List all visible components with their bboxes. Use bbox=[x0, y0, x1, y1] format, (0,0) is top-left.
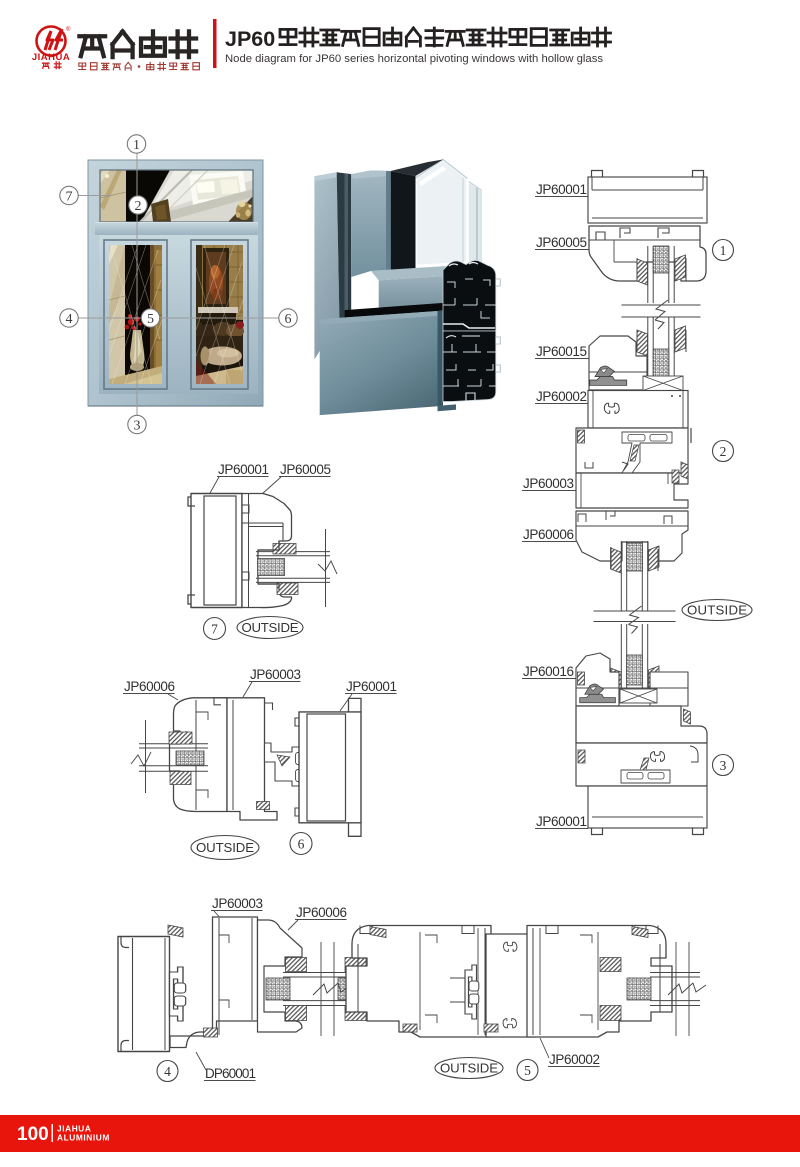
svg-text:3: 3 bbox=[720, 758, 727, 773]
svg-text:7: 7 bbox=[211, 621, 218, 636]
svg-text:JP60005: JP60005 bbox=[280, 462, 331, 477]
svg-text:JP60001: JP60001 bbox=[536, 182, 587, 197]
svg-text:JP60002: JP60002 bbox=[549, 1052, 600, 1067]
svg-text:OUTSIDE: OUTSIDE bbox=[196, 840, 254, 855]
svg-text:OUTSIDE: OUTSIDE bbox=[687, 603, 747, 618]
svg-text:JP60001: JP60001 bbox=[346, 679, 397, 694]
svg-text:ALUMINIUM: ALUMINIUM bbox=[57, 1133, 110, 1143]
svg-text:JP60001: JP60001 bbox=[536, 814, 587, 829]
svg-text:4: 4 bbox=[66, 312, 73, 327]
svg-text:JP60: JP60 bbox=[225, 27, 275, 51]
svg-text:7: 7 bbox=[66, 189, 73, 204]
svg-text:JP60003: JP60003 bbox=[523, 476, 574, 491]
svg-text:1: 1 bbox=[133, 138, 140, 153]
svg-text:3: 3 bbox=[134, 418, 141, 433]
svg-text:JP60002: JP60002 bbox=[536, 389, 587, 404]
svg-text:OUTSIDE: OUTSIDE bbox=[242, 620, 299, 635]
svg-text:2: 2 bbox=[135, 199, 142, 214]
svg-text:JP60001: JP60001 bbox=[218, 462, 269, 477]
svg-text:5: 5 bbox=[147, 312, 154, 327]
svg-text:6: 6 bbox=[298, 836, 305, 851]
svg-text:4: 4 bbox=[164, 1064, 171, 1079]
svg-text:JIAHUA: JIAHUA bbox=[32, 52, 70, 63]
svg-text:5: 5 bbox=[524, 1063, 531, 1078]
svg-text:100: 100 bbox=[17, 1124, 49, 1145]
svg-text:®: ® bbox=[66, 26, 71, 33]
svg-text:Node diagram for JP60 series h: Node diagram for JP60 series horizontal … bbox=[225, 53, 603, 65]
svg-text:JP60006: JP60006 bbox=[124, 679, 175, 694]
svg-text:2: 2 bbox=[720, 444, 727, 459]
svg-text:JP60003: JP60003 bbox=[212, 896, 263, 911]
svg-text:JP60006: JP60006 bbox=[523, 527, 574, 542]
svg-text:JP60015: JP60015 bbox=[536, 344, 587, 359]
svg-text:OUTSIDE: OUTSIDE bbox=[440, 1061, 498, 1076]
svg-text:JP60006: JP60006 bbox=[296, 905, 347, 920]
svg-text:1: 1 bbox=[720, 243, 727, 258]
svg-text:6: 6 bbox=[285, 312, 292, 327]
svg-text:JP60003: JP60003 bbox=[250, 667, 301, 682]
svg-text:JP60016: JP60016 bbox=[523, 664, 574, 679]
svg-text:DP60001: DP60001 bbox=[205, 1066, 256, 1081]
svg-text:JP60005: JP60005 bbox=[536, 235, 587, 250]
